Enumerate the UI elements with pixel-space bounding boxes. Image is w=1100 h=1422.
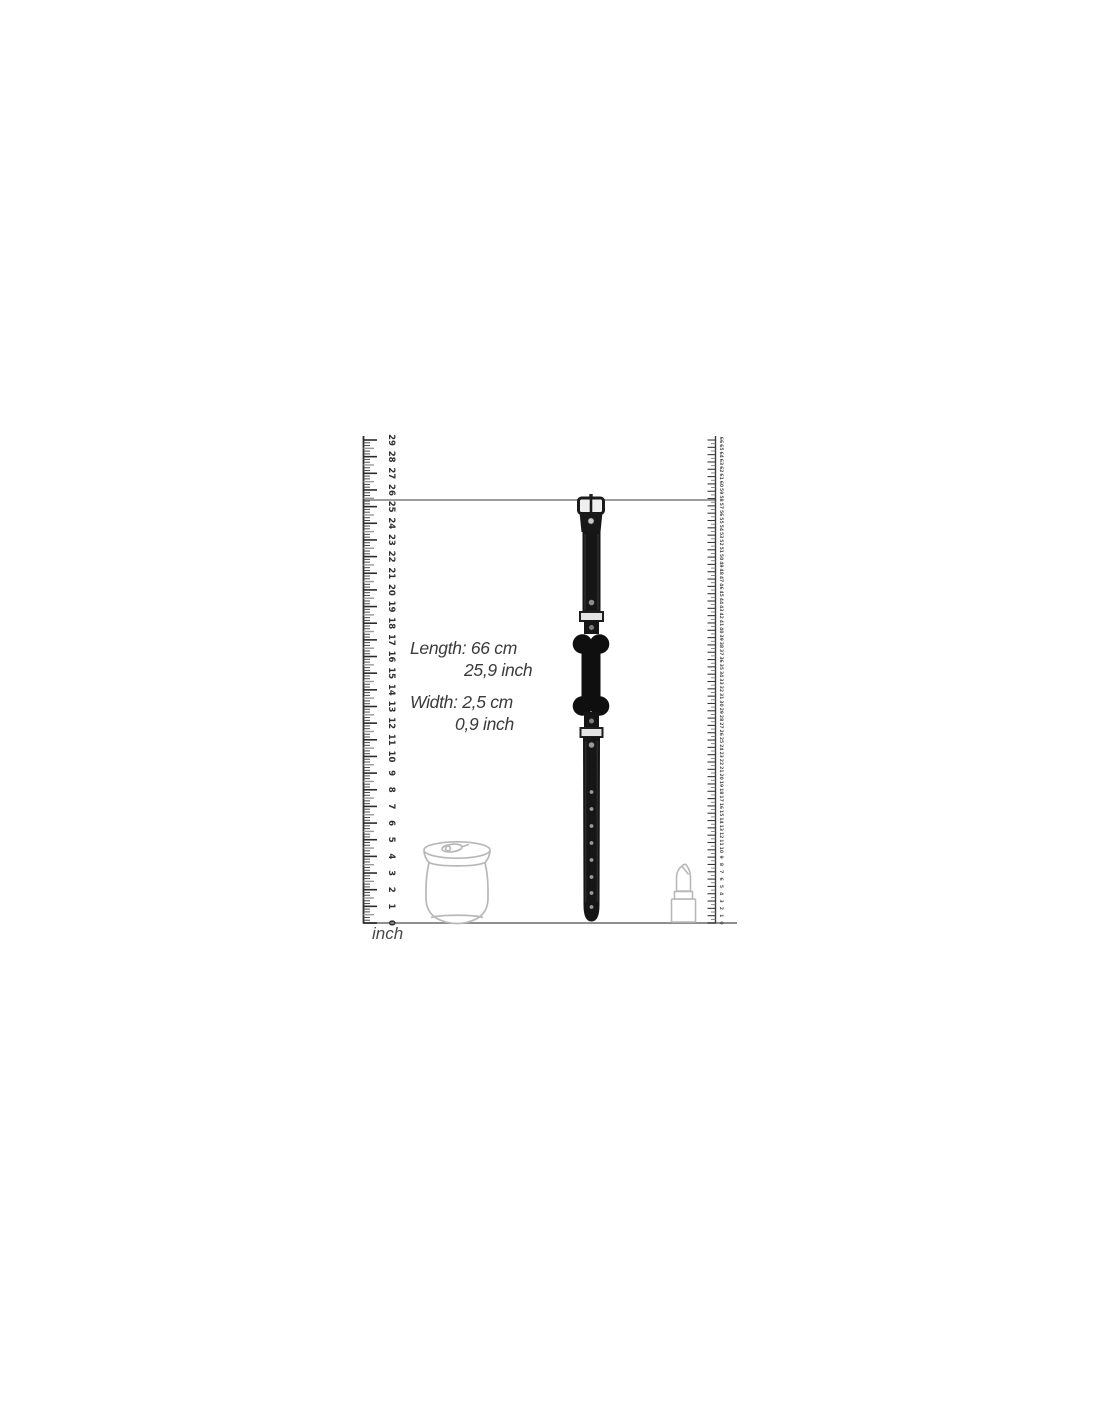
svg-text:4: 4 [386, 853, 396, 859]
width-label-inch: 0,9 inch [455, 716, 514, 734]
svg-text:0: 0 [718, 921, 724, 924]
svg-text:19: 19 [718, 781, 724, 787]
svg-text:37: 37 [718, 649, 724, 655]
svg-text:31: 31 [718, 693, 724, 699]
svg-text:62: 62 [718, 466, 724, 472]
svg-text:20: 20 [386, 584, 396, 596]
svg-text:41: 41 [718, 620, 724, 626]
svg-text:22: 22 [386, 551, 396, 563]
svg-text:52: 52 [718, 539, 724, 545]
lipstick-base [672, 899, 696, 922]
svg-text:12: 12 [718, 832, 724, 838]
keeper-lower [581, 728, 603, 737]
svg-text:4: 4 [718, 892, 724, 895]
svg-text:36: 36 [718, 656, 724, 662]
svg-text:61: 61 [718, 473, 724, 479]
length-label-cm: Length: 66 cm [410, 640, 517, 658]
svg-text:9: 9 [386, 770, 396, 776]
svg-text:24: 24 [386, 517, 396, 529]
svg-text:20: 20 [718, 773, 724, 779]
svg-text:54: 54 [718, 525, 724, 531]
rivet-below-bone [589, 719, 594, 724]
svg-text:7: 7 [718, 870, 724, 873]
svg-text:18: 18 [718, 788, 724, 794]
rivet-above-bone [589, 625, 594, 630]
svg-text:15: 15 [386, 667, 396, 679]
rivet-top [588, 518, 594, 524]
svg-text:53: 53 [718, 532, 724, 538]
svg-text:55: 55 [718, 517, 724, 523]
svg-text:29: 29 [386, 434, 396, 446]
svg-text:14: 14 [386, 684, 396, 696]
svg-text:17: 17 [386, 634, 396, 646]
svg-text:65: 65 [718, 444, 724, 450]
bone-pad [573, 634, 610, 716]
svg-text:12: 12 [386, 717, 396, 729]
left-ruler: 0123456789101112131415161718192021222324… [364, 434, 397, 926]
svg-text:26: 26 [718, 730, 724, 736]
svg-text:39: 39 [718, 634, 724, 640]
svg-text:21: 21 [718, 766, 724, 772]
svg-text:8: 8 [718, 863, 724, 866]
buckle [579, 498, 604, 514]
svg-text:57: 57 [718, 503, 724, 509]
svg-text:6: 6 [386, 820, 396, 826]
lipstick-band [675, 892, 693, 900]
svg-text:46: 46 [718, 583, 724, 589]
svg-text:11: 11 [386, 734, 396, 746]
svg-text:56: 56 [718, 510, 724, 516]
svg-text:10: 10 [386, 751, 396, 763]
svg-text:45: 45 [718, 590, 724, 596]
svg-text:38: 38 [718, 642, 724, 648]
width-label-cm: Width: 2,5 cm [410, 694, 513, 712]
svg-text:3: 3 [386, 870, 396, 876]
right-ruler: 0123456789101112131415161718192021222324… [708, 436, 725, 925]
svg-text:11: 11 [718, 839, 724, 845]
svg-text:23: 23 [718, 751, 724, 757]
svg-text:1: 1 [718, 914, 724, 917]
svg-text:47: 47 [718, 576, 724, 582]
size-chart: 0123456789101112131415161718192021222324… [0, 0, 1100, 1422]
svg-text:13: 13 [718, 825, 724, 831]
svg-text:23: 23 [386, 534, 396, 546]
svg-text:44: 44 [718, 598, 724, 604]
svg-text:58: 58 [718, 495, 724, 501]
svg-text:19: 19 [386, 601, 396, 613]
svg-text:29: 29 [718, 708, 724, 714]
svg-text:8: 8 [386, 787, 396, 793]
svg-text:63: 63 [718, 459, 724, 465]
svg-text:25: 25 [386, 501, 396, 513]
svg-text:22: 22 [718, 759, 724, 765]
svg-text:51: 51 [718, 547, 724, 553]
svg-text:42: 42 [718, 612, 724, 618]
svg-text:2: 2 [386, 887, 396, 893]
svg-text:48: 48 [718, 569, 724, 575]
svg-text:6: 6 [718, 877, 724, 880]
can-body [424, 851, 490, 924]
svg-text:26: 26 [386, 484, 396, 496]
svg-text:66: 66 [718, 437, 724, 443]
lipstick-illustration [672, 864, 696, 922]
svg-text:5: 5 [718, 885, 724, 888]
svg-text:25: 25 [718, 737, 724, 743]
svg-text:15: 15 [718, 810, 724, 816]
svg-text:28: 28 [718, 715, 724, 721]
svg-text:21: 21 [386, 567, 396, 579]
svg-text:5: 5 [386, 837, 396, 843]
svg-text:3: 3 [718, 899, 724, 902]
svg-text:33: 33 [718, 678, 724, 684]
svg-text:64: 64 [718, 451, 724, 457]
svg-text:16: 16 [718, 803, 724, 809]
svg-text:40: 40 [718, 627, 724, 633]
svg-text:7: 7 [386, 803, 396, 809]
svg-text:27: 27 [386, 467, 396, 479]
svg-text:9: 9 [718, 856, 724, 859]
svg-text:59: 59 [718, 488, 724, 494]
svg-text:50: 50 [718, 554, 724, 560]
svg-text:16: 16 [386, 651, 396, 663]
svg-text:14: 14 [718, 817, 724, 823]
keeper-upper [580, 612, 603, 621]
svg-text:30: 30 [718, 700, 724, 706]
length-label-inch: 25,9 inch [464, 662, 532, 680]
can-pull-tab-ring [446, 846, 451, 851]
svg-text:13: 13 [386, 701, 396, 713]
svg-text:17: 17 [718, 795, 724, 801]
inch-unit-label: inch [372, 925, 403, 942]
svg-text:24: 24 [718, 744, 724, 750]
svg-text:28: 28 [386, 451, 396, 463]
svg-text:49: 49 [718, 561, 724, 567]
svg-text:27: 27 [718, 722, 724, 728]
soda-can-illustration [424, 842, 490, 924]
size-chart-graphic: 0123456789101112131415161718192021222324… [0, 0, 1100, 1422]
svg-text:18: 18 [386, 617, 396, 629]
svg-text:35: 35 [718, 664, 724, 670]
rivet-long-strap [589, 742, 595, 748]
svg-text:2: 2 [718, 907, 724, 910]
svg-text:43: 43 [718, 605, 724, 611]
rivet-upper-strap [589, 600, 595, 606]
svg-text:34: 34 [718, 671, 724, 677]
svg-text:1: 1 [386, 903, 396, 909]
svg-text:60: 60 [718, 481, 724, 487]
svg-text:32: 32 [718, 686, 724, 692]
svg-text:10: 10 [718, 847, 724, 853]
bone-gag-product [573, 494, 610, 922]
